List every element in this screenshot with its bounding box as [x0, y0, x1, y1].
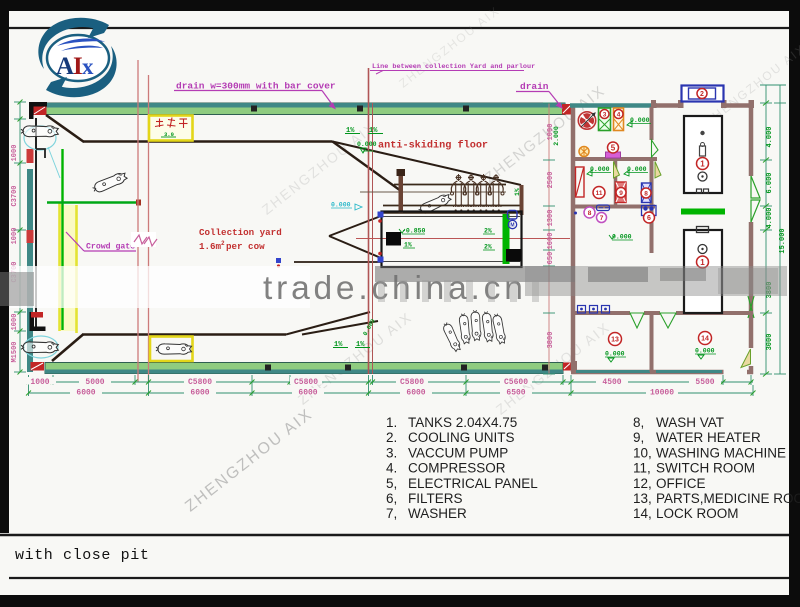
svg-text:C3700: C3700: [11, 185, 19, 206]
svg-text:0.000: 0.000: [627, 166, 647, 173]
svg-text:Collection yard: Collection yard: [199, 227, 282, 238]
svg-text:6.000: 6.000: [766, 172, 774, 193]
svg-text:1%: 1%: [404, 242, 412, 249]
svg-text:1000: 1000: [11, 228, 19, 245]
svg-text:6500: 6500: [506, 389, 525, 398]
svg-text:M: M: [510, 223, 514, 229]
svg-text:1: 1: [700, 258, 705, 267]
svg-text:2: 2: [700, 91, 704, 98]
svg-text:6000: 6000: [76, 389, 95, 398]
svg-text:15.000: 15.000: [779, 228, 787, 253]
svg-text:SWITCH ROOM: SWITCH ROOM: [656, 461, 755, 476]
svg-text:0.000: 0.000: [331, 202, 351, 209]
svg-text:8: 8: [588, 210, 592, 217]
svg-text:trade.china.cn: trade.china.cn: [263, 270, 527, 307]
svg-text:3800: 3800: [547, 332, 555, 349]
svg-text:-0.850: -0.850: [402, 228, 426, 235]
svg-text:3: 3: [603, 111, 607, 118]
svg-text:WASHING MACHINE: WASHING MACHINE: [656, 445, 786, 460]
svg-text:8,: 8,: [633, 415, 644, 430]
svg-text:LOCK ROOM: LOCK ROOM: [656, 506, 739, 521]
svg-text:WATER HEATER: WATER HEATER: [656, 430, 761, 445]
svg-text:0.000: 0.000: [590, 166, 610, 173]
svg-text:2500: 2500: [547, 172, 555, 189]
svg-text:1300: 1300: [547, 210, 555, 227]
svg-text:7: 7: [600, 215, 604, 222]
svg-text:1.: 1.: [386, 415, 397, 430]
svg-text:C5800: C5800: [188, 378, 212, 387]
svg-text:11: 11: [596, 190, 603, 197]
svg-text:C5600: C5600: [504, 378, 528, 387]
svg-text:6000: 6000: [298, 389, 317, 398]
svg-text:1000: 1000: [11, 145, 19, 162]
svg-text:3000: 3000: [766, 334, 774, 351]
svg-text:1000: 1000: [11, 314, 19, 331]
svg-text:TANKS 2.04X4.75: TANKS 2.04X4.75: [408, 415, 517, 430]
svg-text:0.000: 0.000: [612, 234, 632, 241]
svg-text:2.: 2.: [386, 430, 397, 445]
svg-text:9,: 9,: [633, 430, 644, 445]
svg-text:0.000: 0.000: [630, 117, 650, 124]
svg-text:6,: 6,: [386, 491, 397, 506]
svg-text:650: 650: [547, 252, 555, 265]
svg-text:2.000: 2.000: [553, 126, 560, 146]
svg-text:0.000: 0.000: [357, 141, 377, 148]
svg-text:M1500: M1500: [11, 341, 19, 362]
svg-text:9: 9: [619, 190, 623, 197]
svg-text:COMPRESSOR: COMPRESSOR: [408, 461, 506, 476]
svg-text:11,: 11,: [633, 461, 651, 476]
svg-text:8: 8: [644, 190, 648, 197]
svg-text:3.: 3.: [386, 445, 397, 460]
svg-text:C5800: C5800: [400, 378, 424, 387]
svg-text:WASH VAT: WASH VAT: [656, 415, 724, 430]
svg-text:13: 13: [611, 337, 619, 344]
svg-text:2%: 2%: [484, 228, 492, 235]
svg-text:1.6m: 1.6m: [199, 241, 222, 252]
svg-text:4.: 4.: [386, 461, 397, 476]
svg-text:2: 2: [221, 240, 225, 247]
svg-text:per cow: per cow: [226, 241, 265, 252]
svg-text:A: A: [56, 53, 74, 80]
svg-text:13,: 13,: [633, 491, 652, 506]
svg-text:5500: 5500: [695, 378, 714, 387]
svg-text:C5800: C5800: [294, 378, 318, 387]
svg-text:7,: 7,: [386, 506, 397, 521]
svg-text:2%: 2%: [484, 244, 492, 251]
svg-text:4: 4: [617, 111, 621, 118]
svg-text:14: 14: [701, 336, 709, 343]
svg-text:5,: 5,: [386, 476, 397, 491]
svg-text:COOLING UNITS: COOLING UNITS: [408, 430, 515, 445]
svg-text:with close pit: with close pit: [15, 547, 149, 564]
svg-text:x: x: [82, 54, 94, 79]
svg-text:0.000: 0.000: [695, 348, 715, 355]
svg-text:6: 6: [647, 215, 651, 222]
svg-text:FILTERS: FILTERS: [408, 491, 463, 506]
svg-text:OFFICE: OFFICE: [656, 476, 706, 491]
svg-text:ELECTRICAL PANEL: ELECTRICAL PANEL: [408, 476, 538, 491]
svg-text:6000: 6000: [190, 389, 209, 398]
svg-text:Line between collection Yard a: Line between collection Yard and parlour: [372, 63, 535, 71]
svg-text:PARTS,MEDICINE ROOM: PARTS,MEDICINE ROOM: [656, 491, 800, 506]
svg-text:1: 1: [700, 159, 705, 168]
svg-text:1%: 1%: [514, 188, 521, 196]
svg-text:5000: 5000: [85, 378, 104, 387]
svg-text:14,: 14,: [633, 506, 652, 521]
svg-text:6000: 6000: [406, 389, 425, 398]
svg-text:4500: 4500: [602, 378, 621, 387]
svg-text:4.000: 4.000: [766, 126, 774, 147]
svg-text:10000: 10000: [650, 389, 674, 398]
svg-text:anti-skiding floor: anti-skiding floor: [378, 140, 488, 152]
svg-text:4.000: 4.000: [766, 207, 774, 228]
svg-text:10,: 10,: [633, 445, 652, 460]
svg-text:0.000: 0.000: [605, 351, 625, 358]
svg-text:1600: 1600: [547, 233, 555, 250]
svg-text:Crowd gate: Crowd gate: [86, 242, 135, 252]
svg-text:WASHER: WASHER: [408, 506, 467, 521]
svg-text:5: 5: [611, 143, 616, 152]
svg-text:1000: 1000: [30, 378, 49, 387]
svg-text:drain: drain: [520, 81, 549, 92]
svg-text:VACCUM PUMP: VACCUM PUMP: [408, 445, 508, 460]
svg-text:12,: 12,: [633, 476, 652, 491]
